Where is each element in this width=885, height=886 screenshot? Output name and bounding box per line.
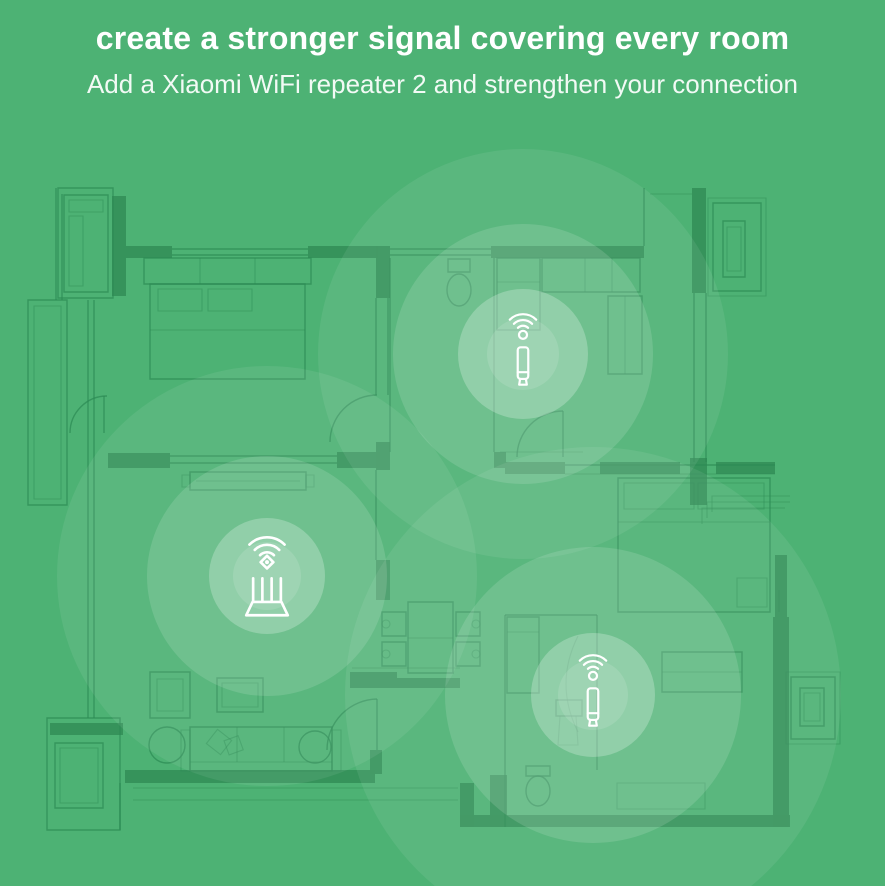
repeater-bottom-coverage-circle (558, 660, 628, 730)
header: create a stronger signal covering every … (0, 0, 885, 100)
router-coverage-circle (233, 542, 301, 610)
poster: create a stronger signal covering every … (0, 0, 885, 886)
page-subtitle: Add a Xiaomi WiFi repeater 2 and strengt… (0, 69, 885, 100)
wifi-coverage-halos (0, 0, 885, 886)
floor-plan-scene (0, 0, 885, 886)
repeater-top-coverage-circle (487, 318, 559, 390)
page-title: create a stronger signal covering every … (0, 20, 885, 57)
